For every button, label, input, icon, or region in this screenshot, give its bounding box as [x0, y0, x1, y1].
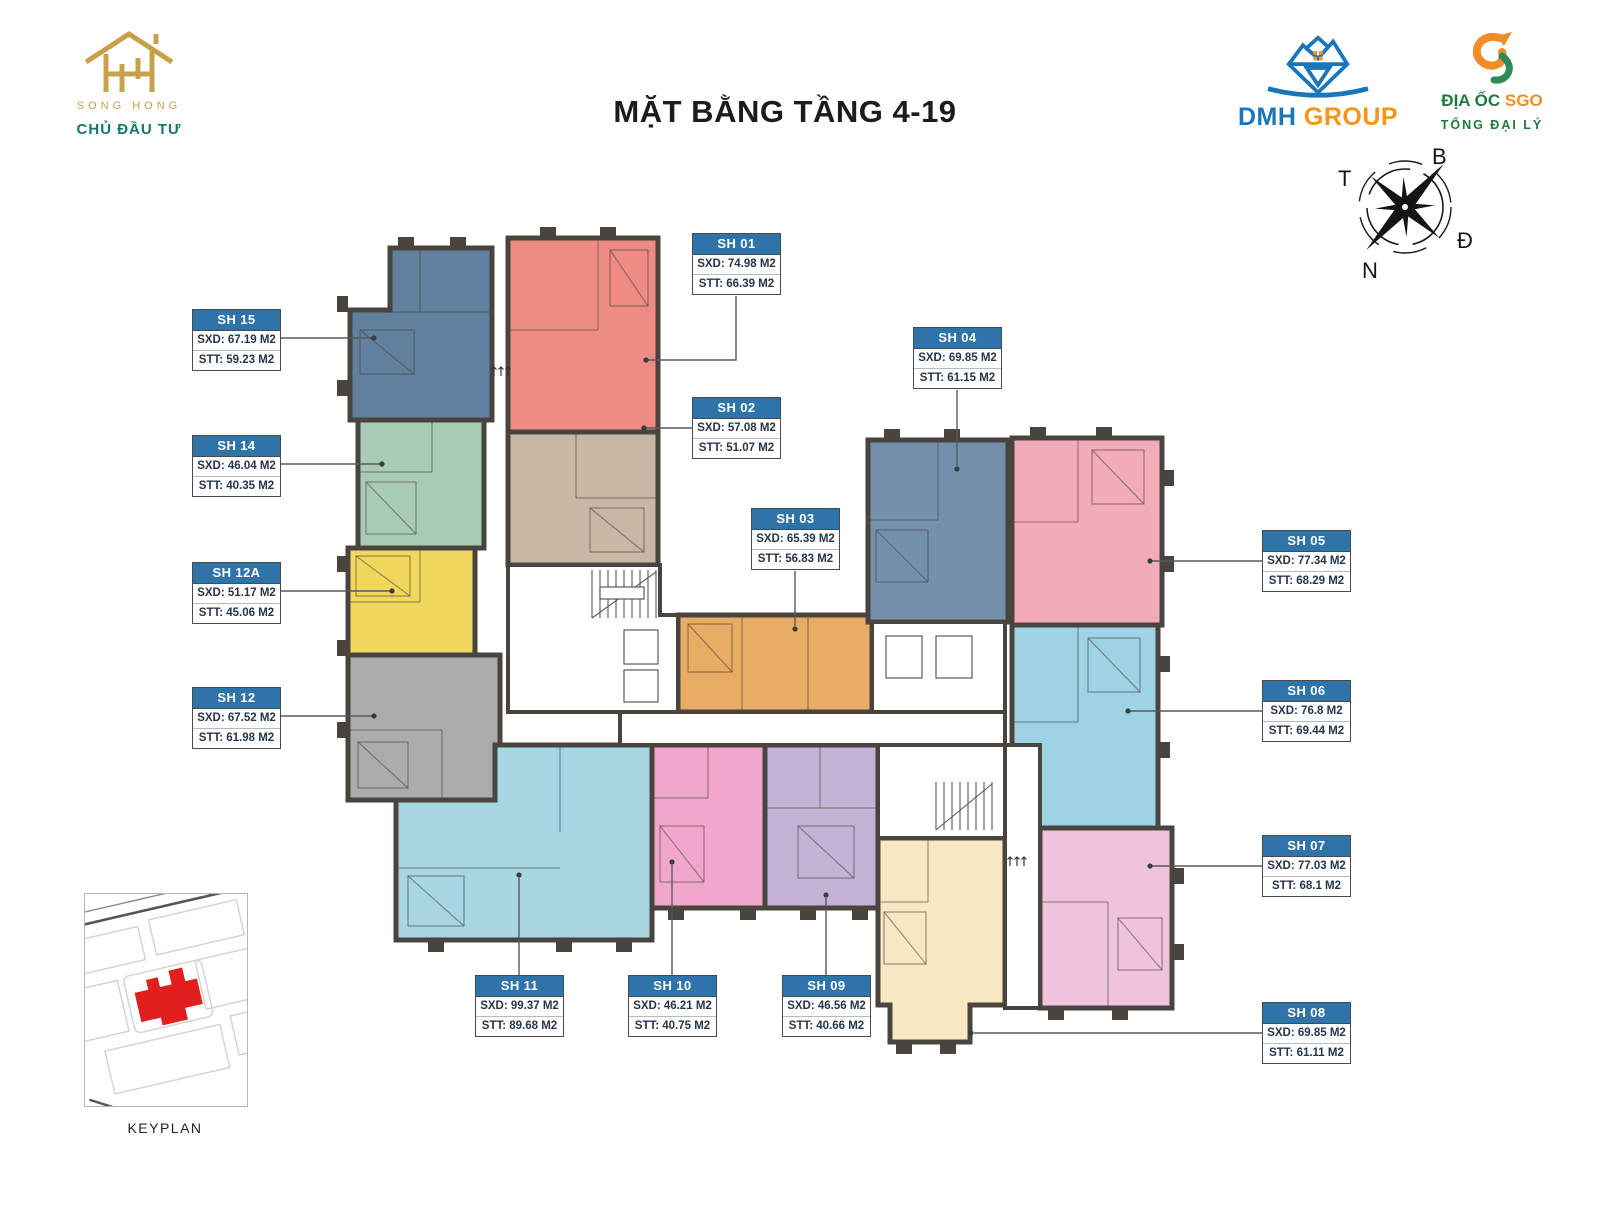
corridor-vertical [1005, 745, 1040, 1008]
keyplan-map [84, 893, 248, 1107]
unit-shape-sh12 [348, 655, 500, 800]
elevator-cab [624, 670, 658, 702]
keyplan-map-icon [85, 894, 247, 1106]
unit-shape-sh08 [878, 838, 1005, 1042]
unit-shape-sh03 [678, 615, 872, 712]
corridor-horizontal [620, 712, 1005, 745]
unit-shape-sh14 [358, 420, 484, 548]
elevator-cab [624, 630, 658, 664]
elevator-cab [886, 636, 922, 678]
unit-shape-sh01 [508, 238, 658, 432]
stair-core-right [878, 745, 1005, 838]
keyplan-caption: KEYPLAN [84, 1120, 246, 1136]
unit-shapes [348, 238, 1172, 1042]
unit-shape-sh05 [1012, 438, 1162, 625]
unit-shape-sh15 [350, 248, 492, 420]
elevator-cab [936, 636, 972, 678]
